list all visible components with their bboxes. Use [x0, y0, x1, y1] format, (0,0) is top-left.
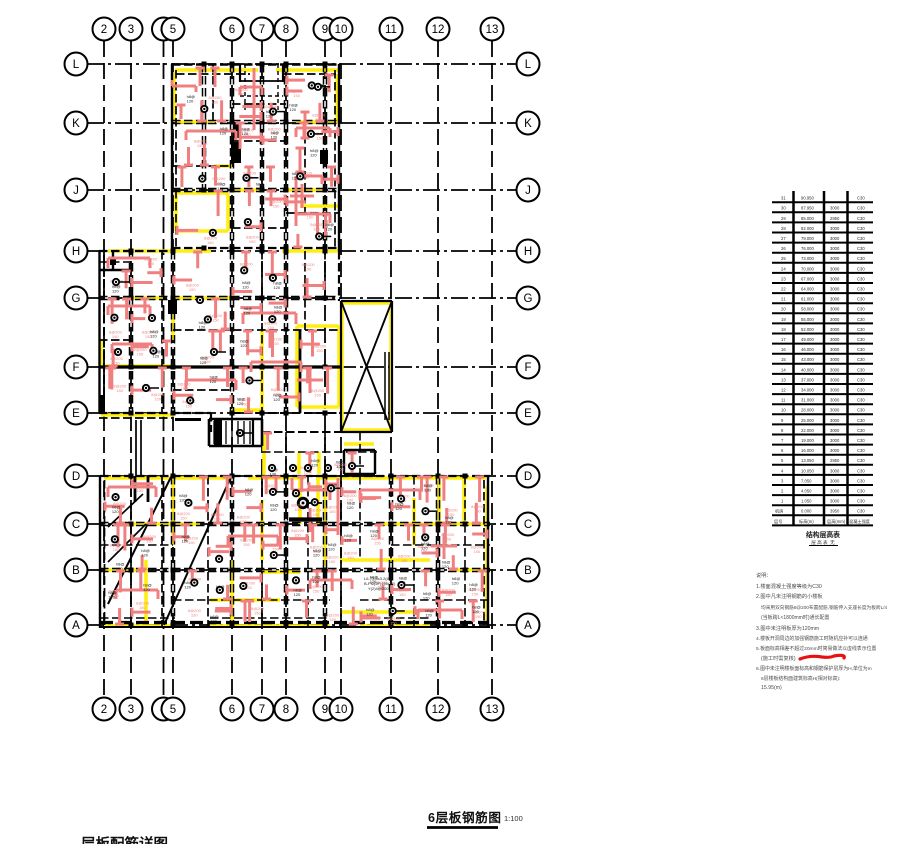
svg-text:7.050: 7.050 [801, 478, 812, 483]
svg-text:150: 150 [472, 592, 479, 597]
svg-text:3000: 3000 [830, 297, 840, 302]
svg-text:120: 120 [421, 546, 428, 551]
svg-text:C: C [72, 519, 80, 531]
svg-text:D: D [524, 471, 532, 483]
svg-text:150: 150 [347, 555, 354, 560]
svg-text:70.000: 70.000 [801, 266, 814, 271]
svg-text:120: 120 [245, 492, 252, 497]
svg-text:27: 27 [781, 236, 786, 241]
svg-text:3000: 3000 [830, 418, 840, 423]
svg-text:120: 120 [112, 289, 119, 294]
svg-text:8: 8 [283, 24, 289, 36]
svg-text:C30: C30 [857, 448, 865, 453]
svg-text:C30: C30 [857, 428, 865, 433]
svg-text:G: G [524, 293, 533, 305]
svg-text:150: 150 [329, 617, 336, 622]
svg-text:F: F [72, 362, 79, 374]
svg-text:150: 150 [399, 592, 406, 597]
svg-text:120: 120 [242, 285, 249, 290]
svg-text:150: 150 [374, 541, 381, 546]
svg-text:10: 10 [781, 408, 786, 413]
svg-text:120: 120 [108, 595, 115, 600]
svg-text:120: 120 [469, 586, 476, 591]
svg-text:13: 13 [781, 377, 786, 382]
svg-text:15: 15 [781, 357, 786, 362]
svg-text:34.000: 34.000 [801, 388, 814, 393]
svg-text:6.图中未注明楼板面标高和钢筋保护层厚为H,单位为m: 6.图中未注明楼板面标高和钢筋保护层厚为H,单位为m [756, 665, 872, 672]
svg-text:150: 150 [137, 351, 144, 356]
svg-text:C30: C30 [857, 246, 865, 251]
svg-text:17: 17 [781, 337, 786, 342]
svg-text:层高(mm): 层高(mm) [827, 518, 846, 525]
svg-text:3: 3 [128, 24, 134, 36]
svg-text:12: 12 [432, 704, 445, 716]
svg-text:120: 120 [312, 579, 319, 584]
svg-text:3000: 3000 [830, 266, 840, 271]
svg-text:3000: 3000 [830, 489, 840, 494]
svg-text:150: 150 [314, 393, 321, 398]
svg-text:15.95(m): 15.95(m) [761, 685, 782, 691]
svg-text:10: 10 [335, 24, 348, 36]
svg-text:G: G [72, 293, 81, 305]
svg-text:C30: C30 [857, 458, 865, 463]
svg-text:120: 120 [184, 585, 191, 590]
svg-text:C30: C30 [857, 418, 865, 423]
svg-text:120: 120 [220, 131, 227, 136]
svg-text:150: 150 [238, 92, 245, 97]
svg-text:3950: 3950 [830, 509, 840, 514]
svg-text:120: 120 [370, 533, 377, 538]
svg-text:120: 120 [274, 309, 281, 314]
svg-text:9: 9 [322, 24, 328, 36]
svg-text:150: 150 [474, 549, 481, 554]
svg-text:C30: C30 [857, 388, 865, 393]
svg-text:120: 120 [244, 311, 251, 316]
svg-text:61.000: 61.000 [801, 297, 814, 302]
svg-text:37.000: 37.000 [801, 377, 814, 382]
svg-text:3000: 3000 [830, 499, 840, 504]
svg-text:C30: C30 [857, 307, 865, 312]
svg-text:150: 150 [116, 388, 123, 393]
svg-text:120: 120 [313, 552, 320, 557]
svg-text:4.050: 4.050 [801, 489, 812, 494]
svg-text:120: 120 [423, 595, 430, 600]
svg-text:Y(2)4@200: Y(2)4@200 [368, 586, 389, 591]
svg-text:3000: 3000 [830, 246, 840, 251]
svg-text:E: E [524, 408, 532, 420]
svg-text:E: E [72, 408, 80, 420]
svg-text:23: 23 [781, 276, 786, 281]
svg-text:C30: C30 [857, 398, 865, 403]
svg-text:C30: C30 [857, 236, 865, 241]
svg-text:3000: 3000 [830, 287, 840, 292]
svg-text:说明：: 说明： [756, 571, 772, 579]
svg-text:J: J [525, 185, 531, 197]
svg-text:79.000: 79.000 [801, 236, 814, 241]
svg-text:150: 150 [273, 204, 280, 209]
svg-text:22: 22 [781, 287, 786, 292]
svg-text:B: B [72, 565, 80, 577]
svg-text:3000: 3000 [830, 337, 840, 342]
svg-text:21: 21 [781, 297, 786, 302]
svg-text:120: 120 [424, 488, 431, 493]
svg-text:F: F [524, 362, 531, 374]
svg-text:5: 5 [170, 24, 176, 36]
svg-text:150: 150 [212, 100, 219, 105]
svg-text:150: 150 [191, 613, 198, 618]
svg-text:结构层高表: 结构层高表 [806, 530, 840, 539]
svg-text:3000: 3000 [830, 388, 840, 393]
svg-text:150: 150 [294, 507, 301, 512]
svg-text:150: 150 [316, 348, 323, 353]
svg-text:120: 120 [199, 325, 206, 330]
svg-text:85.000: 85.000 [801, 216, 814, 221]
svg-text:120: 120 [395, 506, 402, 511]
svg-text:C30: C30 [857, 478, 865, 483]
svg-text:120: 120 [112, 509, 119, 514]
svg-text:10.050: 10.050 [801, 468, 814, 473]
svg-text:C30: C30 [857, 317, 865, 322]
svg-text:120: 120 [452, 580, 459, 585]
svg-text:150: 150 [401, 558, 408, 563]
svg-text:120: 120 [442, 564, 449, 569]
svg-text:120: 120 [141, 552, 148, 557]
svg-text:120: 120 [150, 334, 157, 339]
svg-text:31: 31 [781, 196, 786, 201]
svg-text:82.000: 82.000 [801, 226, 814, 231]
svg-text:150: 150 [294, 533, 301, 538]
svg-text:0.000: 0.000 [801, 509, 812, 514]
svg-text:6层板钢筋图: 6层板钢筋图 [428, 810, 502, 825]
svg-text:3000: 3000 [830, 236, 840, 241]
svg-text:150: 150 [272, 547, 279, 552]
svg-text:层板配筋详图: 层板配筋详图 [81, 835, 168, 844]
svg-text:A: A [524, 620, 532, 632]
svg-text:87.950: 87.950 [801, 206, 814, 211]
svg-text:2950: 2950 [830, 216, 840, 221]
svg-text:A: A [72, 620, 80, 632]
svg-text:150: 150 [146, 539, 153, 544]
svg-text:25.000: 25.000 [801, 418, 814, 423]
svg-text:120: 120 [270, 507, 277, 512]
svg-text:12: 12 [781, 388, 786, 393]
svg-text:C30: C30 [857, 438, 865, 443]
svg-text:25: 25 [781, 256, 786, 261]
svg-text:120: 120 [326, 226, 333, 231]
svg-text:76.000: 76.000 [801, 246, 814, 251]
svg-text:C30: C30 [857, 196, 865, 201]
svg-text:120: 120 [344, 537, 351, 542]
svg-text:机房: 机房 [775, 508, 783, 515]
svg-text:40.000: 40.000 [801, 367, 814, 372]
svg-text:22.000: 22.000 [801, 428, 814, 433]
svg-text:(施工时需复核): (施工时需复核) [761, 654, 796, 662]
svg-text:19: 19 [781, 317, 786, 322]
svg-text:20: 20 [781, 307, 786, 312]
svg-text:12: 12 [432, 24, 445, 36]
svg-text:26: 26 [781, 246, 786, 251]
svg-text:120: 120 [187, 99, 194, 104]
svg-text:150: 150 [329, 559, 336, 564]
svg-text:3000: 3000 [830, 357, 840, 362]
svg-text:120: 120 [240, 343, 247, 348]
svg-text:24: 24 [781, 266, 786, 271]
svg-text:28.000: 28.000 [801, 408, 814, 413]
svg-text:120: 120 [366, 611, 373, 616]
svg-text:C30: C30 [857, 276, 865, 281]
svg-text:3000: 3000 [830, 206, 840, 211]
svg-text:150: 150 [154, 396, 161, 401]
svg-text:4.楼板开洞周边的加强钢筋施工时随机应补可以连通: 4.楼板开洞周边的加强钢筋施工时随机应补可以连通 [756, 635, 868, 642]
svg-text:150: 150 [207, 240, 214, 245]
svg-text:1.050: 1.050 [801, 499, 812, 504]
svg-text:150: 150 [249, 239, 256, 244]
svg-text:L: L [73, 59, 80, 71]
svg-text:C30: C30 [857, 287, 865, 292]
svg-text:3000: 3000 [830, 377, 840, 382]
svg-text:150: 150 [212, 318, 219, 323]
svg-text:120: 120 [271, 135, 278, 140]
svg-text:3000: 3000 [830, 256, 840, 261]
svg-text:J: J [73, 185, 79, 197]
svg-text:2.图中凡未注明钢筋的小楼板: 2.图中凡未注明钢筋的小楼板 [756, 592, 823, 600]
svg-text:C30: C30 [857, 256, 865, 261]
svg-text:150: 150 [474, 509, 481, 514]
svg-text:120: 120 [347, 505, 354, 510]
svg-text:8: 8 [283, 704, 289, 716]
svg-text:29: 29 [781, 216, 786, 221]
svg-text:2: 2 [101, 704, 107, 716]
svg-text:150: 150 [254, 611, 261, 616]
svg-text:150: 150 [329, 509, 336, 514]
svg-text:K: K [72, 118, 80, 130]
svg-text:46.000: 46.000 [801, 347, 814, 352]
svg-text:90.950: 90.950 [801, 196, 814, 201]
svg-text:13: 13 [486, 24, 499, 36]
svg-text:C30: C30 [857, 367, 865, 372]
svg-text:混凝土强度: 混凝土强度 [849, 518, 871, 525]
svg-text:3000: 3000 [830, 408, 840, 413]
svg-text:120: 120 [210, 619, 217, 624]
svg-text:3000: 3000 [830, 347, 840, 352]
svg-text:3000: 3000 [830, 276, 840, 281]
svg-text:150: 150 [444, 537, 451, 542]
svg-text:150: 150 [189, 287, 196, 292]
svg-text:67.000: 67.000 [801, 276, 814, 281]
svg-text:120: 120 [294, 592, 301, 597]
svg-text:C30: C30 [857, 206, 865, 211]
svg-text:2950: 2950 [830, 458, 840, 463]
svg-text:C30: C30 [857, 489, 865, 494]
svg-text:43.000: 43.000 [801, 357, 814, 362]
svg-text:14: 14 [781, 367, 786, 372]
svg-text:9: 9 [322, 704, 328, 716]
svg-text:150: 150 [214, 517, 221, 522]
svg-text:150: 150 [305, 267, 312, 272]
svg-text:16.000: 16.000 [801, 448, 814, 453]
svg-text:11: 11 [385, 24, 397, 36]
svg-text:58.000: 58.000 [801, 307, 814, 312]
svg-text:120: 120 [425, 612, 432, 617]
svg-text:150: 150 [112, 334, 119, 339]
svg-text:28: 28 [781, 226, 786, 231]
svg-text:7: 7 [259, 24, 265, 36]
svg-text:C30: C30 [857, 297, 865, 302]
svg-text:55.000: 55.000 [801, 317, 814, 322]
svg-text:120: 120 [256, 186, 263, 191]
svg-text:3000: 3000 [830, 226, 840, 231]
svg-text:6层楼板结构面建筑标高H(相对标高):: 6层楼板结构面建筑标高H(相对标高): [761, 675, 840, 682]
svg-text:C30: C30 [857, 377, 865, 382]
svg-text:49.000: 49.000 [801, 337, 814, 342]
svg-text:D: D [72, 471, 80, 483]
svg-text:3000: 3000 [830, 438, 840, 443]
svg-text:120: 120 [237, 401, 244, 406]
svg-text:150: 150 [316, 136, 323, 141]
svg-text:150: 150 [147, 261, 154, 266]
svg-text:C30: C30 [857, 408, 865, 413]
svg-text:6: 6 [229, 24, 235, 36]
svg-text:150: 150 [113, 361, 120, 366]
svg-text:13.050: 13.050 [801, 458, 814, 463]
svg-text:H: H [72, 246, 80, 258]
svg-text:150: 150 [445, 592, 452, 597]
svg-text:120: 120 [182, 538, 189, 543]
svg-text:C30: C30 [857, 357, 865, 362]
svg-text:150: 150 [267, 325, 274, 330]
svg-text:31.000: 31.000 [801, 398, 814, 403]
svg-text:10: 10 [335, 704, 348, 716]
svg-text:均采用双向钢筋8@200布置配筋,钢筋伸入支座长度为板跨L/: 均采用双向钢筋8@200布置配筋,钢筋伸入支座长度为板跨L/4 [761, 604, 888, 611]
svg-text:120: 120 [273, 285, 280, 290]
svg-text:64.000: 64.000 [801, 287, 814, 292]
svg-text:3000: 3000 [830, 367, 840, 372]
svg-text:3000: 3000 [830, 398, 840, 403]
svg-text:3: 3 [128, 704, 134, 716]
svg-text:120: 120 [336, 464, 343, 469]
svg-text:C30: C30 [857, 216, 865, 221]
svg-text:标高(m): 标高(m) [799, 518, 814, 525]
svg-text:11: 11 [385, 704, 397, 716]
svg-text:150: 150 [197, 143, 204, 148]
svg-text:3000: 3000 [830, 327, 840, 332]
svg-text:2: 2 [101, 24, 107, 36]
svg-text:16: 16 [781, 347, 786, 352]
svg-text:120: 120 [310, 153, 317, 158]
svg-text:120: 120 [210, 379, 217, 384]
svg-text:150: 150 [293, 93, 300, 98]
svg-text:11: 11 [781, 398, 786, 403]
svg-text:150: 150 [315, 117, 322, 122]
svg-text:19.000: 19.000 [801, 438, 814, 443]
svg-text:3000: 3000 [830, 317, 840, 322]
svg-text:C30: C30 [857, 468, 865, 473]
svg-text:C30: C30 [857, 499, 865, 504]
svg-text:120: 120 [273, 397, 280, 402]
svg-text:5: 5 [170, 704, 176, 716]
svg-text:3000: 3000 [830, 468, 840, 473]
svg-text:120: 120 [289, 107, 296, 112]
svg-text:150: 150 [137, 488, 144, 493]
svg-text:6: 6 [229, 704, 235, 716]
svg-text:(当板跨L<1800mm时)通长配置: (当板跨L<1800mm时)通长配置 [761, 614, 830, 621]
svg-text:150: 150 [243, 542, 250, 547]
svg-text:C30: C30 [857, 226, 865, 231]
svg-text:150: 150 [272, 341, 279, 346]
svg-text:C30: C30 [857, 337, 865, 342]
svg-text:1.楼面混凝土强度等级为C30: 1.楼面混凝土强度等级为C30 [756, 582, 822, 590]
svg-text:120: 120 [242, 131, 249, 136]
svg-text:5.板面标高相差不超过20mm时简易做法以虚线表示位置: 5.板面标高相差不超过20mm时简易做法以虚线表示位置 [756, 645, 876, 652]
svg-text:L: L [525, 59, 532, 71]
svg-text:C30: C30 [857, 509, 865, 514]
svg-text:120: 120 [328, 547, 335, 552]
svg-text:C: C [524, 519, 532, 531]
svg-text:1:100: 1:100 [504, 814, 523, 823]
svg-text:150: 150 [180, 516, 187, 521]
svg-text:150: 150 [313, 226, 320, 231]
svg-text:H: H [524, 246, 532, 258]
svg-text:3000: 3000 [830, 448, 840, 453]
svg-text:150: 150 [188, 540, 195, 545]
svg-text:C30: C30 [857, 266, 865, 271]
svg-text:7: 7 [259, 704, 265, 716]
svg-text:150: 150 [139, 605, 146, 610]
svg-text:C30: C30 [857, 347, 865, 352]
svg-text:120: 120 [311, 462, 318, 467]
svg-text:120: 120 [200, 360, 207, 365]
svg-text:150: 150 [390, 621, 397, 626]
svg-text:13: 13 [486, 704, 499, 716]
svg-text:150: 150 [181, 386, 188, 391]
svg-text:73.000: 73.000 [801, 256, 814, 261]
svg-text:150: 150 [113, 547, 120, 552]
svg-text:3000: 3000 [830, 307, 840, 312]
svg-text:C30: C30 [857, 327, 865, 332]
svg-text:30: 30 [781, 206, 786, 211]
svg-text:52.000: 52.000 [801, 327, 814, 332]
svg-text:B: B [524, 565, 532, 577]
svg-text:3000: 3000 [830, 428, 840, 433]
svg-text:120: 120 [472, 609, 479, 614]
svg-text:150: 150 [313, 589, 320, 594]
svg-text:120: 120 [143, 587, 150, 592]
svg-text:K: K [524, 118, 532, 130]
svg-text:150: 150 [240, 519, 247, 524]
svg-text:150: 150 [475, 614, 482, 619]
svg-text:150: 150 [313, 512, 320, 517]
svg-text:3000: 3000 [830, 478, 840, 483]
svg-text:18: 18 [781, 327, 786, 332]
svg-text:3.图中未注明板厚为120mm: 3.图中未注明板厚为120mm [756, 624, 819, 632]
